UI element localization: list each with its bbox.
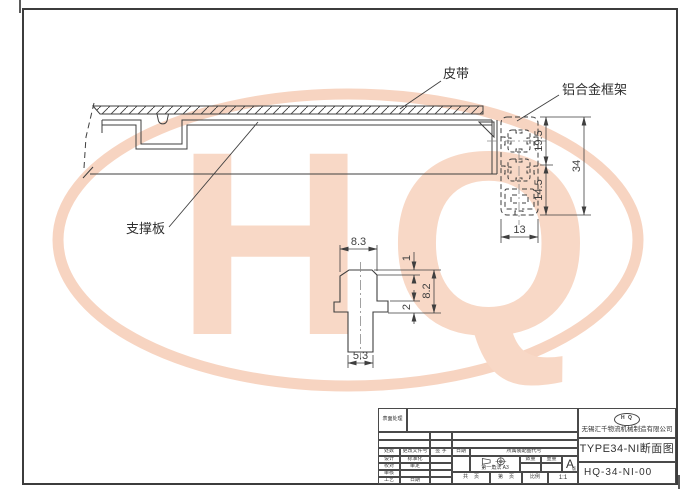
revision-header-file: 更改文件号 — [400, 448, 430, 456]
version-label: 版 — [572, 467, 576, 471]
approval-sign-cell — [430, 456, 452, 463]
assembly-code-label: 所属装配图代号 — [470, 448, 578, 456]
revision-row-cell — [378, 440, 430, 448]
weight-header: 重量 — [541, 456, 562, 463]
approval-design-label: 设计 — [378, 456, 400, 463]
approval-sign-cell — [430, 477, 452, 484]
approval-audit-label: 审核 — [378, 470, 400, 477]
company-name: 无锡汇千物流机械制造有限公司 — [582, 427, 673, 434]
sheet-total-cell: 共页 — [452, 472, 490, 484]
scanned-engineering-drawing: { "watermark": { "text": "HQ", "color": … — [0, 0, 700, 495]
revision-header-qty: 处数 — [378, 448, 400, 456]
weight-value — [541, 463, 562, 472]
revision-header-sign: 签 字 — [430, 448, 452, 456]
revision-row-cell — [430, 432, 452, 440]
version-cell: A 版 — [562, 456, 578, 472]
sheet-number-cell: 第页 — [490, 472, 522, 484]
surface-treatment-cell: 表面处理 — [378, 408, 407, 432]
approval-process-label: 工艺 — [378, 477, 400, 484]
projection-label: 第一角法 A3 — [481, 466, 509, 471]
revision-row-cell — [452, 440, 578, 448]
approval-sign-cell — [430, 463, 452, 470]
projection-cell: 第一角法 A3 — [470, 456, 520, 472]
trim-mark-bottom-right — [678, 475, 680, 489]
approval-date-label: 日期 — [400, 477, 430, 484]
hq-logo: H Q — [614, 413, 640, 426]
drawing-title: TYPE34-NI断面图 — [580, 444, 675, 456]
approval-check-label: 校对 — [378, 463, 400, 470]
qty-value — [520, 463, 541, 472]
revision-row-cell — [452, 432, 578, 440]
drawing-title-cell: TYPE34-NI断面图 — [578, 438, 676, 462]
title-block: 表面处理 处数 更改文件号 签 字 日期 所属装配图代号 设计 标准化 校对 审… — [378, 408, 676, 484]
revision-header-date: 日期 — [452, 448, 470, 456]
surface-treatment-value — [407, 408, 578, 432]
approval-audit-value — [400, 470, 430, 477]
approval-sign-cell — [430, 470, 452, 477]
scale-value-cell: 1:1 — [548, 472, 578, 484]
scale-label-cell: 比例 — [522, 472, 548, 484]
company-cell: H Q 无锡汇千物流机械制造有限公司 — [578, 408, 676, 438]
revision-row-cell — [378, 432, 430, 440]
approval-standard-label: 标准化 — [400, 456, 430, 463]
drawing-number-cell: HQ-34-NI-00 — [578, 462, 676, 484]
approval-approve-label: 审定 — [400, 463, 430, 470]
trim-mark-top-left — [19, 0, 21, 13]
revision-row-cell — [430, 440, 452, 448]
date-column-cell — [452, 456, 470, 472]
surface-treatment-label: 表面处理 — [382, 417, 402, 422]
qty-header: 数量 — [520, 456, 541, 463]
drawing-number: HQ-34-NI-00 — [584, 468, 652, 479]
